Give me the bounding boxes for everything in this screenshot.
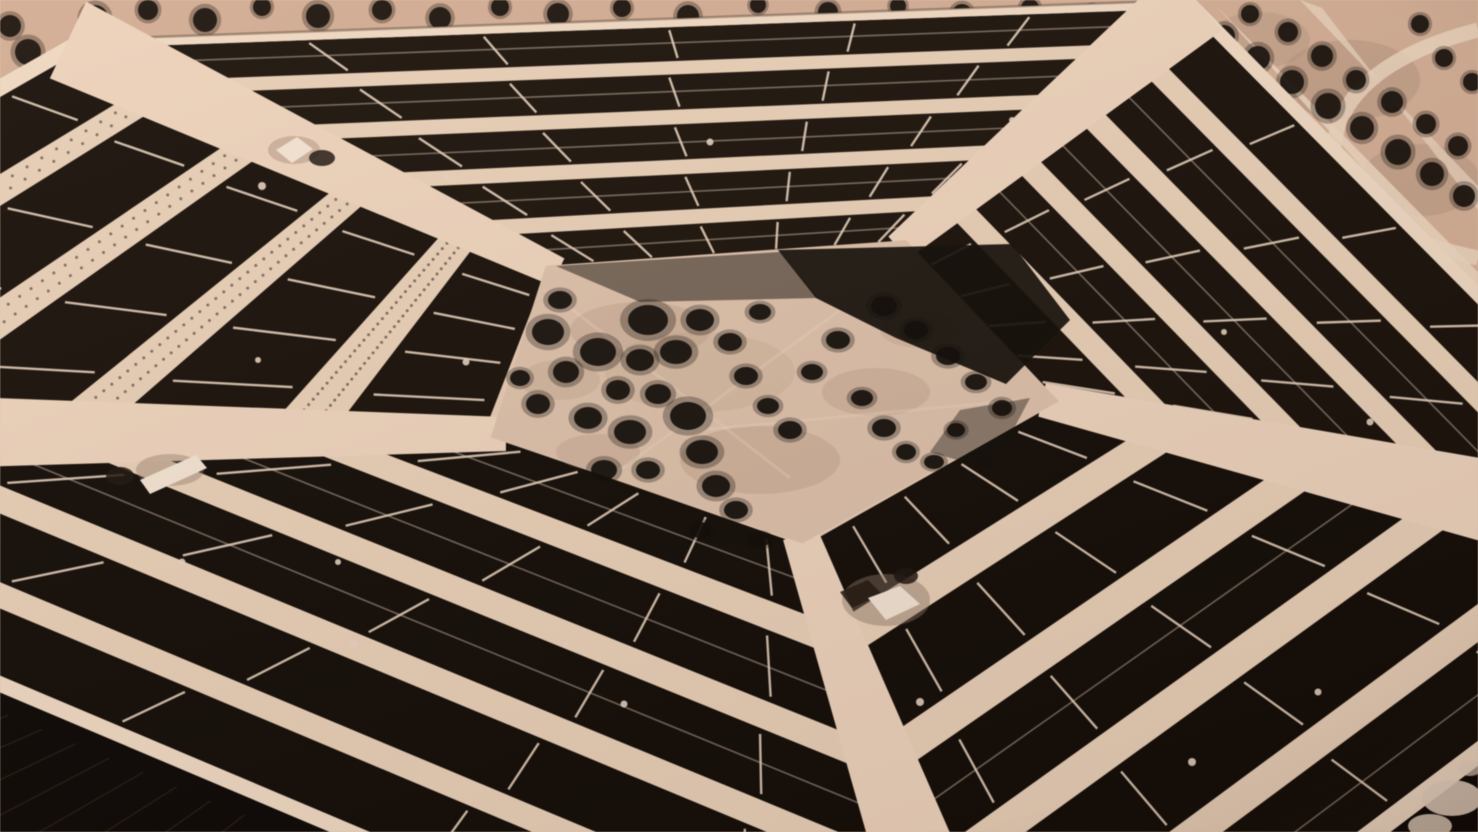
window-dot (246, 271, 249, 274)
pentagon-aerial-photograph (0, 0, 1478, 832)
window-dot (269, 267, 272, 270)
roof-vent (1367, 419, 1374, 426)
window-dot (448, 257, 451, 260)
window-dot (262, 274, 265, 277)
window-dot (135, 228, 138, 231)
window-dot (310, 218, 313, 221)
courtyard-tree (757, 398, 779, 414)
ground-tree (1241, 5, 1259, 23)
courtyard-tree (574, 407, 602, 429)
window-dot (223, 154, 226, 157)
window-dot (362, 339, 365, 342)
window-dot (386, 312, 389, 315)
window-dot (47, 289, 50, 292)
window-dot (185, 338, 188, 341)
window-dot (99, 120, 102, 123)
skylight-pyramid-topleft-companion (309, 150, 335, 166)
window-dot (395, 301, 398, 304)
courtyard-tree (686, 440, 718, 464)
courtyard-tree (580, 338, 616, 366)
window-dot (380, 341, 383, 344)
courtyard-tree (965, 374, 987, 390)
window-dot (86, 248, 89, 251)
ground-tree (1411, 15, 1429, 33)
window-dot (431, 278, 434, 281)
window-dot (139, 377, 142, 380)
window-dot (84, 129, 87, 132)
window-dot (376, 346, 379, 349)
window-dot (118, 376, 121, 379)
ground-tree (193, 8, 217, 32)
window-dot (270, 251, 273, 254)
courtyard-tree (826, 331, 850, 349)
window-dot (193, 332, 196, 335)
window-dot (64, 264, 67, 267)
courtyard-tree (750, 533, 770, 547)
window-dot (124, 115, 127, 118)
window-dot (166, 193, 169, 196)
window-dot (38, 169, 41, 172)
expansion-joint-line (760, 734, 761, 794)
window-dot (277, 261, 280, 264)
roof-vent (707, 139, 714, 146)
window-dot (102, 389, 105, 392)
window-dot (154, 364, 157, 367)
window-dot (453, 251, 456, 254)
courtyard-tree (896, 444, 916, 460)
window-dot (231, 300, 234, 303)
roof-vent (1009, 117, 1015, 123)
ground-tree (1453, 185, 1475, 207)
window-dot (326, 382, 329, 385)
courtyard-tree (645, 384, 671, 404)
window-dot (216, 313, 219, 316)
courtyard-tree (724, 501, 748, 519)
window-dot (254, 264, 257, 267)
window-dot (102, 251, 105, 254)
window-dot (372, 328, 375, 331)
window-dot (182, 323, 185, 326)
window-dot (441, 247, 444, 250)
window-dot (436, 253, 439, 256)
window-dot (200, 325, 203, 328)
ground-tree (1385, 139, 1411, 165)
window-dot (200, 170, 203, 173)
ground-tree (1346, 70, 1366, 90)
window-dot (409, 285, 412, 288)
window-dot (337, 393, 340, 396)
window-dot (41, 279, 44, 282)
window-dot (9, 187, 12, 190)
window-dot (26, 165, 29, 168)
courtyard-tree (749, 304, 771, 320)
courtyard-tree (689, 522, 711, 538)
window-dot (52, 271, 55, 274)
window-dot (91, 259, 94, 262)
courtyard-tree (548, 291, 572, 309)
window-dot (246, 287, 249, 290)
courtyard-tree (510, 370, 530, 386)
window-dot (147, 371, 150, 374)
window-dot (349, 355, 352, 358)
window-dot (166, 337, 169, 340)
window-dot (70, 138, 73, 141)
courtyard-tree (872, 419, 896, 437)
window-dot (155, 201, 158, 204)
window-dot (302, 224, 305, 227)
window-dot (381, 317, 384, 320)
window-dot (179, 197, 182, 200)
roof-vent (335, 559, 341, 565)
window-dot (36, 297, 39, 300)
window-dot (333, 399, 336, 402)
courtyard-tree (718, 333, 742, 351)
roof-vent (80, 448, 88, 456)
courtyard-tree (670, 402, 706, 430)
courtyard-tree (686, 309, 714, 331)
window-dot (168, 205, 171, 208)
window-dot (427, 263, 430, 266)
window-dot (316, 392, 319, 395)
window-dot (307, 403, 310, 406)
window-dot (363, 362, 366, 365)
roof-vent (443, 173, 450, 180)
window-dot (132, 217, 135, 220)
window-dot (81, 142, 84, 145)
courtyard-tree (626, 349, 654, 371)
window-dot (397, 320, 400, 323)
window-dot (358, 344, 361, 347)
courtyard-tree (904, 321, 928, 339)
courtyard-tree (591, 460, 617, 480)
roof-vent (916, 698, 924, 706)
ground-tree (138, 0, 158, 20)
window-dot (427, 283, 430, 286)
window-dot (58, 282, 61, 285)
window-dot (150, 350, 153, 353)
window-dot (278, 244, 281, 247)
window-dot (342, 388, 345, 391)
window-dot (121, 225, 124, 228)
window-dot (25, 305, 28, 308)
skylight-pyramid-bottom-companion (894, 568, 918, 584)
roof-vent (1221, 329, 1227, 335)
roof-vent (563, 641, 569, 647)
window-dot (198, 310, 201, 313)
window-dot (40, 156, 43, 159)
window-dot (11, 174, 14, 177)
window-dot (157, 213, 160, 216)
expansion-joint-line (776, 222, 778, 249)
window-dot (212, 174, 215, 177)
window-dot (414, 299, 417, 302)
window-dot (131, 384, 134, 387)
window-dot (14, 313, 17, 316)
ground-tree (1416, 114, 1436, 134)
window-dot (338, 209, 341, 212)
window-dot (440, 267, 443, 270)
window-dot (315, 228, 318, 231)
window-dot (393, 325, 396, 328)
window-dot (201, 182, 204, 185)
window-dot (294, 231, 297, 234)
window-dot (359, 367, 362, 370)
window-dot (55, 147, 58, 150)
window-dot (18, 295, 21, 298)
window-dot (235, 159, 238, 162)
window-dot (96, 133, 99, 136)
window-dot (3, 320, 6, 323)
window-dot (98, 240, 101, 243)
window-dot (413, 279, 416, 282)
window-dot (208, 319, 211, 322)
window-dot (170, 351, 173, 354)
window-dot (344, 360, 347, 363)
window-dot (212, 162, 215, 165)
window-dot (190, 190, 193, 193)
window-dot (330, 376, 333, 379)
window-dot (346, 383, 349, 386)
courtyard-tree (660, 340, 692, 364)
courtyard-tree (734, 367, 758, 385)
courtyard-tree (532, 319, 564, 345)
courtyard-tree (702, 475, 730, 497)
window-dot (24, 178, 27, 181)
window-dot (134, 363, 137, 366)
window-dot (376, 322, 379, 325)
window-dot (189, 178, 192, 181)
window-dot (214, 297, 217, 300)
window-dot (346, 203, 349, 206)
window-dot (110, 124, 113, 127)
window-dot (406, 309, 409, 312)
window-dot (124, 236, 127, 239)
window-dot (389, 330, 392, 333)
roof-vent (351, 641, 358, 648)
courtyard-tree (851, 390, 873, 406)
window-dot (399, 296, 402, 299)
window-dot (444, 262, 447, 265)
roof-vent (1315, 689, 1322, 696)
window-dot (284, 254, 287, 257)
window-dot (292, 248, 295, 251)
window-dot (110, 383, 113, 386)
window-dot (177, 345, 180, 348)
window-dot (423, 288, 426, 291)
window-dot (223, 306, 226, 309)
courtyard-tree (992, 400, 1012, 416)
courtyard-tree (801, 364, 823, 380)
window-dot (178, 186, 181, 189)
window-dot (410, 304, 413, 307)
window-dot (418, 294, 421, 297)
window-dot (230, 284, 233, 287)
window-dot (223, 166, 226, 169)
window-dot (239, 293, 242, 296)
window-dot (334, 198, 337, 201)
roof-vent (1188, 758, 1196, 766)
window-dot (67, 151, 70, 154)
window-dot (367, 357, 370, 360)
window-dot (355, 372, 358, 375)
courtyard-tree (871, 296, 897, 316)
window-dot (114, 111, 117, 114)
courtyard-tree (614, 420, 646, 444)
window-dot (94, 396, 97, 399)
window-dot (109, 232, 112, 235)
ground-tree (1350, 116, 1374, 140)
window-dot (222, 290, 225, 293)
ground-tree (306, 4, 330, 28)
window-dot (262, 257, 265, 260)
ground-tree (1311, 45, 1333, 67)
window-dot (162, 358, 165, 361)
window-dot (307, 235, 310, 238)
courtyard-tree (636, 461, 660, 479)
window-dot (404, 290, 407, 293)
window-dot (126, 370, 129, 373)
window-dot (113, 243, 116, 246)
skylight-pyramid-left-companion (106, 467, 134, 485)
ground-tree (1278, 22, 1298, 42)
window-dot (174, 330, 177, 333)
window-dot (401, 315, 404, 318)
roof-vent (258, 182, 266, 190)
window-dot (367, 333, 370, 336)
window-dot (372, 351, 375, 354)
window-dot (339, 365, 342, 368)
ground-tree (1381, 91, 1403, 113)
ground-tree (1420, 162, 1444, 186)
ground-tree (372, 0, 392, 20)
window-dot (206, 304, 209, 307)
window-dot (422, 269, 425, 272)
window-dot (335, 371, 338, 374)
window-dot (432, 258, 435, 261)
ground-tree (1448, 136, 1468, 156)
window-dot (142, 356, 145, 359)
window-dot (158, 343, 161, 346)
window-dot (436, 273, 439, 276)
roof-vent (179, 559, 186, 566)
courtyard-tree (924, 455, 944, 469)
window-dot (300, 241, 303, 244)
window-dot (30, 287, 33, 290)
window-dot (7, 303, 10, 306)
window-dot (384, 336, 387, 339)
window-dot (124, 390, 127, 393)
window-dot (330, 215, 333, 218)
roof-vent (255, 357, 261, 363)
window-dot (286, 238, 289, 241)
courtyard-tree (628, 305, 668, 335)
roof-vent (621, 701, 628, 708)
window-dot (329, 404, 332, 407)
window-dot (190, 317, 193, 320)
courtyard-tree (526, 394, 550, 414)
courtyard-tree (947, 423, 965, 437)
photo-canvas (0, 0, 1478, 832)
expansion-joint-line (1430, 325, 1478, 326)
window-dot (69, 274, 72, 277)
courtyard-tree (778, 421, 802, 439)
window-dot (146, 220, 149, 223)
window-dot (321, 387, 324, 390)
window-dot (418, 274, 421, 277)
window-dot (353, 349, 356, 352)
window-dot (254, 280, 257, 283)
courtyard-tree (936, 347, 960, 365)
ground-tree (1435, 49, 1453, 67)
window-dot (52, 160, 55, 163)
window-dot (238, 277, 241, 280)
courtyard-tree (606, 380, 630, 400)
window-dot (75, 256, 78, 259)
ground-tree (0, 15, 21, 37)
window-dot (326, 205, 329, 208)
courtyard-tree (553, 361, 579, 383)
window-dot (390, 306, 393, 309)
window-dot (80, 266, 83, 269)
window-dot (312, 398, 315, 401)
roof-vent (463, 359, 470, 366)
window-dot (323, 222, 326, 225)
window-dot (116, 397, 119, 400)
window-dot (143, 209, 146, 212)
window-dot (318, 211, 321, 214)
ground-tree (1315, 93, 1341, 119)
window-dot (350, 378, 353, 381)
